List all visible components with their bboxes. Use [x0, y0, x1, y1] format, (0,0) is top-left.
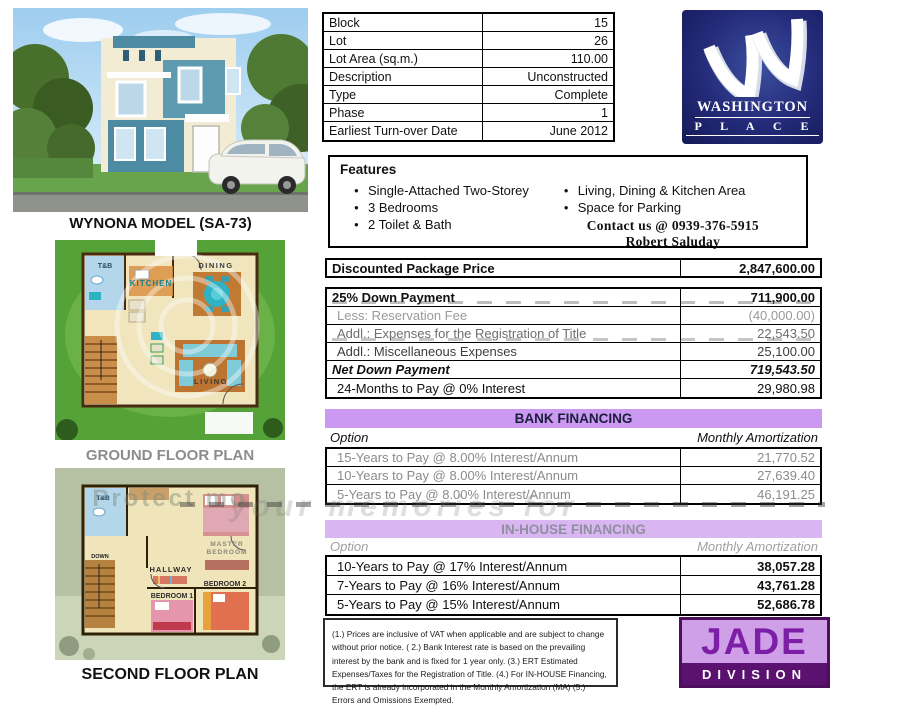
second-floor-plan-label: SECOND FLOOR PLAN — [30, 666, 310, 684]
flyer-page: WYNONA MODEL (SA-73) — [0, 0, 920, 705]
table-row: 5-Years to Pay @ 8.00% Interest/Annum 46… — [327, 485, 820, 503]
table-row: Type Complete — [324, 86, 613, 104]
dp-value: 29,980.98 — [680, 379, 820, 397]
table-row: Addl.: Miscellaneous Expenses 25,100.00 — [327, 343, 820, 361]
table-row: Block 15 — [324, 14, 613, 32]
financing-option: 10-Years to Pay @ 8.00% Interest/Annum — [327, 468, 680, 483]
room-label-tb2: T&B — [96, 495, 110, 502]
table-row: Description Unconstructed — [324, 68, 613, 86]
inhouse-financing-header: IN-HOUSE FINANCING — [325, 520, 822, 538]
info-value: 1 — [482, 104, 613, 121]
financing-amount: 52,686.78 — [680, 595, 820, 614]
room-label-down: DOWN — [91, 554, 108, 560]
info-label: Lot — [324, 34, 482, 48]
house-photo — [13, 8, 308, 212]
table-row: Addl.: Expenses for the Registration of … — [327, 325, 820, 343]
bank-financing-table: 15-Years to Pay @ 8.00% Interest/Annum 2… — [325, 447, 822, 505]
info-value: Complete — [482, 86, 613, 103]
model-name-label: WYNONA MODEL (SA-73) — [13, 215, 308, 232]
info-label: Description — [324, 70, 482, 84]
table-row: 24-Months to Pay @ 0% Interest 29,980.98 — [327, 379, 820, 397]
inhouse-option-header-row: Option Monthly Amortization — [325, 538, 822, 555]
amount-column-label: Monthly Amortization — [642, 539, 822, 554]
features-left-column: Single-Attached Two-Storey 3 Bedrooms 2 … — [340, 181, 550, 250]
jade-wordmark: JADE — [682, 620, 827, 663]
amount-column-label: Monthly Amortization — [642, 430, 822, 445]
feature-item: 3 Bedrooms — [368, 200, 550, 215]
ground-floor-plan-illustration: T&B KITCHEN DINING LIVING — [55, 240, 285, 440]
washington-wordmark: WASHINGTON — [695, 99, 810, 118]
place-wordmark: P L A C E — [686, 118, 818, 136]
division-wordmark: DIVISION — [682, 663, 827, 685]
table-row: 15-Years to Pay @ 8.00% Interest/Annum 2… — [327, 449, 820, 467]
room-label-kitchen: KITCHEN — [130, 279, 173, 288]
fine-print-notes: (1.) Prices are inclusive of VAT when ap… — [323, 618, 618, 687]
financing-amount: 46,191.25 — [680, 485, 820, 503]
dp-value: 22,543.50 — [680, 325, 820, 342]
table-row: Phase 1 — [324, 104, 613, 122]
info-value: Unconstructed — [482, 68, 613, 85]
info-label: Earliest Turn-over Date — [324, 124, 482, 138]
financing-amount: 21,770.52 — [680, 449, 820, 466]
features-box: Features Single-Attached Two-Storey 3 Be… — [328, 155, 808, 248]
feature-item: Space for Parking — [578, 200, 796, 215]
package-price-row: Discounted Package Price 2,847,600.00 — [325, 258, 822, 278]
info-label: Lot Area (sq.m.) — [324, 52, 482, 66]
second-floor-plan: Protect mo T&B MASTER BEDROOM HALLWAY BE… — [55, 468, 285, 660]
dp-label: 24-Months to Pay @ 0% Interest — [327, 381, 680, 396]
down-payment-table: 25% Down Payment 711,900.00 Less: Reserv… — [325, 287, 822, 399]
jade-division-logo: JADE DIVISION — [679, 617, 830, 688]
dp-value: 711,900.00 — [680, 289, 820, 306]
financing-option: 10-Years to Pay @ 17% Interest/Annum — [327, 559, 680, 574]
ground-floor-plan: T&B KITCHEN DINING LIVING — [55, 240, 285, 440]
package-price-value: 2,847,600.00 — [680, 260, 820, 276]
room-label-bedroom2: BEDROOM 2 — [204, 581, 247, 588]
table-row: 25% Down Payment 711,900.00 — [327, 289, 820, 307]
table-row: 10-Years to Pay @ 17% Interest/Annum 38,… — [327, 557, 820, 576]
table-row: 10-Years to Pay @ 8.00% Interest/Annum 2… — [327, 467, 820, 485]
info-label: Block — [324, 16, 482, 30]
second-floor-plan-illustration: Protect mo T&B MASTER BEDROOM HALLWAY BE… — [55, 468, 285, 660]
watermark-text-fragment: Protect mo — [92, 485, 247, 512]
dp-label: Less: Reservation Fee — [327, 308, 680, 323]
info-label: Phase — [324, 106, 482, 120]
info-value: 26 — [482, 32, 613, 49]
table-row: Lot 26 — [324, 32, 613, 50]
table-row: Less: Reservation Fee (40,000.00) — [327, 307, 820, 325]
dp-label: Addl.: Expenses for the Registration of … — [327, 326, 680, 341]
room-label-dining: DINING — [198, 261, 233, 270]
room-label-master-2: BEDROOM — [207, 549, 248, 556]
house-illustration — [13, 8, 308, 212]
info-value: 15 — [482, 14, 613, 31]
feature-item: Single-Attached Two-Storey — [368, 183, 550, 198]
bank-financing-header: BANK FINANCING — [325, 409, 822, 428]
financing-option: 15-Years to Pay @ 8.00% Interest/Annum — [327, 450, 680, 465]
table-row: 7-Years to Pay @ 16% Interest/Annum 43,7… — [327, 576, 820, 595]
room-label-master-1: MASTER — [210, 541, 243, 548]
financing-option: 7-Years to Pay @ 16% Interest/Annum — [327, 578, 680, 593]
features-right-column: Living, Dining & Kitchen Area Space for … — [550, 181, 796, 250]
room-label-hallway: HALLWAY — [150, 565, 193, 574]
financing-amount: 27,639.40 — [680, 467, 820, 484]
option-column-label: Option — [325, 430, 642, 445]
financing-amount: 43,761.28 — [680, 576, 820, 594]
washington-w-icon — [693, 15, 813, 97]
bank-option-header-row: Option Monthly Amortization — [325, 428, 822, 447]
table-row: Earliest Turn-over Date June 2012 — [324, 122, 613, 140]
package-price-label: Discounted Package Price — [327, 261, 680, 276]
table-row: Lot Area (sq.m.) 110.00 — [324, 50, 613, 68]
feature-item: 2 Toilet & Bath — [368, 217, 550, 232]
financing-option: 5-Years to Pay @ 15% Interest/Annum — [327, 597, 680, 612]
financing-option: 5-Years to Pay @ 8.00% Interest/Annum — [327, 487, 680, 502]
dp-value: 719,543.50 — [680, 361, 820, 378]
contact-agent-name: Robert Saluday — [550, 234, 796, 250]
contact-phone: Contact us @ 0939-376-5915 — [550, 218, 796, 234]
ground-floor-plan-label: GROUND FLOOR PLAN — [30, 447, 310, 464]
dp-value: (40,000.00) — [680, 307, 820, 324]
option-column-label: Option — [325, 539, 642, 554]
dp-value: 25,100.00 — [680, 343, 820, 360]
dp-label: 25% Down Payment — [327, 290, 680, 305]
info-value: June 2012 — [482, 122, 613, 140]
room-label-bedroom1: BEDROOM 1 — [151, 593, 194, 600]
info-label: Type — [324, 88, 482, 102]
financing-amount: 38,057.28 — [680, 557, 820, 575]
dp-label: Net Down Payment — [327, 362, 680, 377]
room-label-living: LIVING — [194, 377, 228, 386]
features-title: Features — [340, 162, 796, 177]
table-row: Net Down Payment 719,543.50 — [327, 361, 820, 379]
feature-item: Living, Dining & Kitchen Area — [578, 183, 796, 198]
washington-place-logo: WASHINGTON P L A C E — [682, 10, 823, 144]
room-label-tb: T&B — [98, 263, 112, 270]
dp-label: Addl.: Miscellaneous Expenses — [327, 344, 680, 359]
inhouse-financing-table: 10-Years to Pay @ 17% Interest/Annum 38,… — [325, 555, 822, 616]
table-row: 5-Years to Pay @ 15% Interest/Annum 52,6… — [327, 595, 820, 614]
lot-info-table: Block 15 Lot 26 Lot Area (sq.m.) 110.00 … — [322, 12, 615, 142]
info-value: 110.00 — [482, 50, 613, 67]
